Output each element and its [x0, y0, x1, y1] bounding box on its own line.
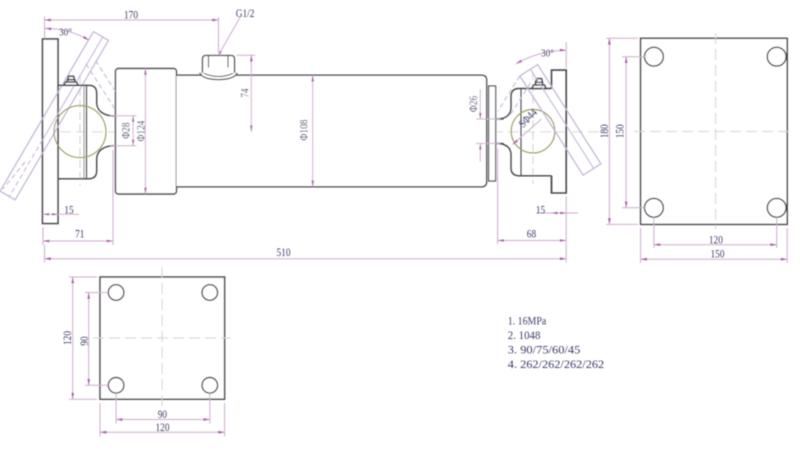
svg-text:Φ108: Φ108: [296, 120, 310, 141]
svg-text:170: 170: [124, 7, 138, 21]
svg-text:120: 120: [156, 420, 170, 434]
svg-text:2. 1048: 2. 1048: [508, 328, 541, 342]
svg-text:15: 15: [536, 203, 545, 217]
svg-text:510: 510: [277, 245, 291, 259]
svg-text:1. 16MPa: 1. 16MPa: [508, 313, 547, 327]
svg-text:15: 15: [64, 202, 73, 216]
svg-text:Φ124: Φ124: [134, 121, 148, 142]
svg-text:150: 150: [613, 124, 627, 138]
svg-text:90: 90: [77, 336, 91, 345]
svg-text:68: 68: [527, 227, 536, 241]
svg-text:4. 262/262/262/262: 4. 262/262/262/262: [508, 357, 604, 371]
svg-text:71: 71: [75, 226, 84, 240]
svg-text:120: 120: [709, 232, 723, 246]
svg-text:Φ26: Φ26: [466, 96, 480, 112]
svg-text:180: 180: [597, 124, 611, 138]
svg-text:150: 150: [711, 246, 725, 260]
svg-text:120: 120: [60, 331, 74, 345]
svg-text:30°: 30°: [541, 48, 554, 60]
svg-text:30°: 30°: [59, 27, 72, 39]
svg-text:90: 90: [158, 407, 167, 421]
svg-text:3. 90/75/60/45: 3. 90/75/60/45: [508, 342, 581, 356]
svg-text:Φ28: Φ28: [118, 122, 132, 138]
svg-text:74: 74: [237, 88, 251, 97]
svg-text:SΦ44: SΦ44: [517, 107, 540, 131]
svg-text:G1/2: G1/2: [236, 6, 255, 20]
